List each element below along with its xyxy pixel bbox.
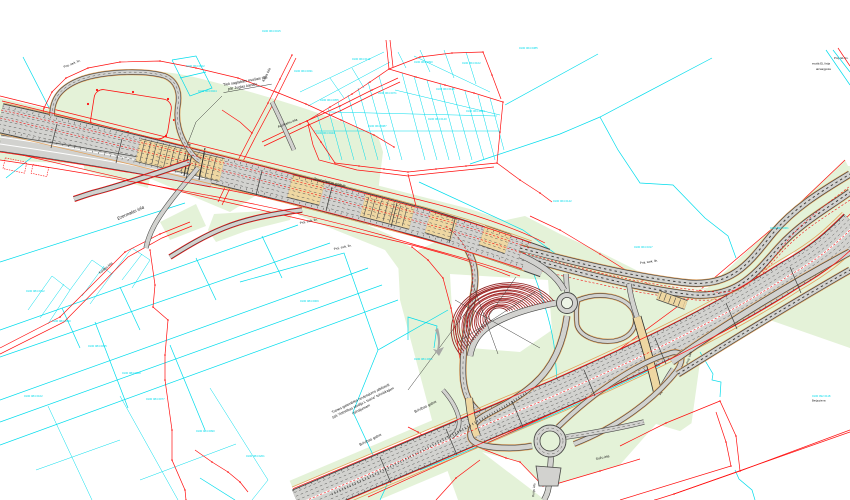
svg-text:0100 064 0024: 0100 064 0024: [198, 89, 217, 93]
svg-text:0100 064 0071: 0100 064 0071: [378, 91, 397, 95]
svg-text:0100 064 0087: 0100 064 0087: [368, 124, 387, 128]
svg-text:0100 084 0040: 0100 084 0040: [52, 319, 71, 323]
svg-text:0100 064 0112: 0100 064 0112: [352, 57, 371, 61]
svg-text:0100 064 0118: 0100 064 0118: [436, 87, 455, 91]
svg-text:0100 084 0090: 0100 084 0090: [196, 429, 215, 433]
svg-text:0100 084 2001: 0100 084 2001: [414, 357, 433, 361]
svg-text:0100 064 0055: 0100 064 0055: [320, 98, 339, 102]
svg-text:0100 084 0012: 0100 084 0012: [26, 289, 45, 293]
svg-text:0100 064 0022: 0100 064 0022: [186, 64, 205, 68]
svg-text:0100 064 0090: 0100 064 0090: [414, 60, 433, 64]
svg-text:0100 064 0142: 0100 064 0142: [553, 199, 572, 203]
svg-text:0100 064 0385: 0100 064 0385: [519, 46, 538, 50]
svg-text:0100 084 0009: 0100 084 0009: [300, 299, 319, 303]
svg-text:Proj. EL līn.: Proj. EL līn.: [834, 56, 849, 60]
svg-text:0100 092 0061: 0100 092 0061: [770, 226, 789, 230]
svg-text:0100 084 0201: 0100 084 0201: [246, 454, 265, 458]
svg-text:0100 064 2004: 0100 064 2004: [466, 109, 485, 113]
svg-text:0100 084 0102: 0100 084 0102: [24, 394, 43, 398]
svg-text:0100 064 0043: 0100 064 0043: [316, 131, 335, 135]
svg-text:0100 084 0068: 0100 084 0068: [122, 371, 141, 375]
svg-text:0100 084 0077: 0100 084 0077: [146, 397, 165, 401]
svg-text:aizsargjosla: aizsargjosla: [816, 67, 831, 71]
svg-text:0100 092 0118: 0100 092 0118: [812, 394, 831, 398]
svg-text:0100 064 0031: 0100 064 0031: [294, 69, 313, 73]
svg-text:0100 064 0140: 0100 064 0140: [428, 117, 447, 121]
svg-text:esošā EL līnija: esošā EL līnija: [812, 62, 831, 66]
svg-text:0100 084 0055: 0100 084 0055: [88, 344, 107, 348]
svg-text:0100 064 0317: 0100 064 0317: [634, 245, 653, 249]
svg-text:0100 064 0102: 0100 064 0102: [462, 61, 481, 65]
svg-text:0100 064 0015: 0100 064 0015: [262, 29, 281, 33]
